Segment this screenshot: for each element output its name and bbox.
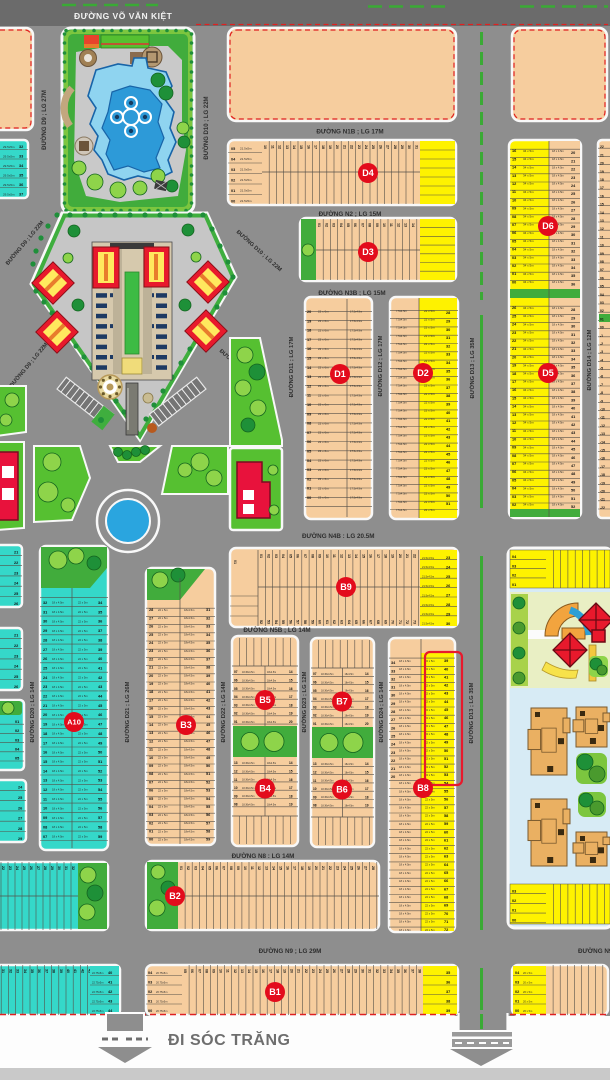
svg-text:17: 17: [293, 866, 297, 870]
svg-text:31: 31: [391, 686, 395, 690]
svg-text:23: 23: [391, 751, 395, 755]
svg-text:20 x 5m: 20 x 5m: [523, 999, 532, 1003]
svg-text:06: 06: [190, 969, 194, 973]
svg-text:18: 18: [43, 732, 47, 736]
svg-text:22 x 5m: 22 x 5m: [78, 732, 88, 736]
svg-text:58: 58: [206, 830, 210, 834]
svg-text:18 x 4.5m: 18 x 4.5m: [552, 413, 565, 417]
svg-text:18 x 4.5m: 18 x 4.5m: [552, 174, 565, 178]
svg-text:29: 29: [50, 866, 54, 870]
svg-text:11: 11: [149, 748, 153, 752]
svg-text:01: 01: [512, 909, 516, 913]
svg-text:22 x 5m: 22 x 5m: [158, 698, 168, 702]
svg-text:19: 19: [283, 969, 287, 973]
svg-text:13: 13: [307, 375, 311, 379]
svg-text:07: 07: [313, 672, 317, 676]
svg-text:48: 48: [206, 748, 210, 752]
svg-text:34 x 5m: 34 x 5m: [523, 182, 534, 186]
svg-text:11: 11: [512, 429, 516, 433]
svg-text:26: 26: [512, 306, 516, 310]
svg-text:05: 05: [313, 689, 317, 693]
svg-text:37: 37: [446, 386, 450, 390]
svg-text:22 x 5m: 22 x 5m: [424, 500, 435, 504]
svg-text:22 x 5m: 22 x 5m: [158, 829, 168, 833]
svg-text:22 x 5m: 22 x 5m: [425, 830, 435, 834]
svg-text:-19: -19: [600, 481, 605, 485]
svg-text:13: 13: [512, 174, 516, 178]
svg-text:21.5x4.5m: 21.5x4.5m: [422, 584, 434, 588]
svg-text:30: 30: [57, 866, 61, 870]
svg-text:35: 35: [206, 641, 210, 645]
svg-text:02: 02: [512, 264, 516, 268]
svg-text:22 x 5m: 22 x 5m: [158, 838, 168, 842]
svg-text:51: 51: [446, 502, 450, 506]
svg-text:22 x 5m: 22 x 5m: [158, 624, 168, 628]
svg-text:ĐƯỜNG D13 ; LG 35M: ĐƯỜNG D13 ; LG 35M: [467, 682, 475, 743]
svg-text:41: 41: [73, 969, 77, 973]
svg-text:18 x 4.5m: 18 x 4.5m: [552, 190, 565, 194]
svg-text:46: 46: [444, 716, 448, 720]
svg-text:21: 21: [342, 145, 346, 149]
svg-text:36: 36: [446, 981, 450, 985]
svg-text:22 x 5m: 22 x 5m: [425, 765, 435, 769]
svg-text:35: 35: [446, 971, 450, 975]
svg-text:29: 29: [571, 225, 575, 229]
svg-text:18x4.5m: 18x4.5m: [184, 682, 195, 686]
svg-text:13: 13: [512, 413, 516, 417]
svg-text:00: 00: [512, 918, 516, 922]
svg-text:15: 15: [600, 203, 604, 207]
svg-text:22 x 5m: 22 x 5m: [424, 400, 435, 404]
svg-text:09: 09: [313, 795, 317, 799]
svg-text:49: 49: [206, 756, 210, 760]
svg-text:56: 56: [98, 807, 102, 811]
svg-text:07: 07: [43, 835, 47, 839]
svg-text:18 x 4.5m: 18 x 4.5m: [399, 732, 412, 736]
svg-text:21: 21: [391, 767, 395, 771]
svg-text:34: 34: [23, 969, 27, 973]
svg-text:53: 53: [267, 620, 271, 624]
svg-text:22 x 6m: 22 x 6m: [318, 421, 329, 425]
svg-text:18.36x4.5m: 18.36x4.5m: [242, 721, 255, 724]
svg-text:07: 07: [303, 554, 307, 558]
svg-text:27: 27: [571, 209, 575, 213]
svg-text:34 x 5m: 34 x 5m: [523, 396, 534, 400]
svg-text:22 x 5m: 22 x 5m: [78, 638, 88, 642]
svg-text:22 x 5m: 22 x 5m: [78, 778, 88, 782]
svg-text:47: 47: [206, 739, 210, 743]
svg-text:-1: -1: [600, 334, 603, 338]
svg-text:73: 73: [413, 620, 417, 624]
svg-text:46: 46: [446, 461, 450, 465]
svg-text:18: 18: [383, 554, 387, 558]
svg-text:22 x 5m: 22 x 5m: [158, 690, 168, 694]
svg-text:07: 07: [512, 462, 516, 466]
svg-text:22: 22: [43, 695, 47, 699]
svg-text:34 x 5m: 34 x 5m: [523, 363, 534, 367]
svg-text:22 x 5m: 22 x 5m: [424, 417, 435, 421]
svg-text:28: 28: [571, 217, 575, 221]
svg-text:18x4.5m: 18x4.5m: [184, 805, 195, 809]
svg-text:20: 20: [391, 775, 395, 779]
svg-text:18 x 4.5m: 18 x 4.5m: [52, 732, 65, 736]
svg-text:09: 09: [212, 969, 216, 973]
svg-text:06: 06: [353, 223, 357, 227]
svg-text:18 x 4.5m: 18 x 4.5m: [52, 806, 65, 810]
svg-text:15: 15: [361, 554, 365, 558]
svg-text:60: 60: [318, 620, 322, 624]
svg-text:ĐƯỜNG N1B ; LG 17M: ĐƯỜNG N1B ; LG 17M: [316, 127, 383, 136]
svg-text:18: 18: [289, 794, 293, 798]
svg-text:63: 63: [444, 855, 448, 859]
svg-text:01: 01: [515, 1000, 519, 1004]
svg-text:12: 12: [149, 739, 153, 743]
svg-text:ĐƯỜNG VÕ VĂN KIỆT: ĐƯỜNG VÕ VĂN KIỆT: [74, 10, 173, 21]
svg-text:58: 58: [444, 814, 448, 818]
svg-text:18 x 4.5m: 18 x 4.5m: [552, 206, 565, 210]
svg-text:7.5x4.5m: 7.5x4.5m: [396, 392, 407, 396]
svg-text:04: 04: [600, 293, 604, 297]
svg-text:22 x 5m: 22 x 5m: [158, 813, 168, 817]
svg-text:18.36x4.5m: 18.36x4.5m: [321, 780, 334, 783]
svg-text:34 x 5m: 34 x 5m: [523, 306, 534, 310]
svg-text:48: 48: [98, 732, 102, 736]
svg-text:21: 21: [14, 634, 18, 638]
svg-text:08: 08: [512, 454, 516, 458]
svg-text:26: 26: [29, 866, 33, 870]
svg-text:29: 29: [43, 629, 47, 633]
svg-text:26: 26: [43, 657, 47, 661]
svg-text:09: 09: [234, 794, 238, 798]
svg-text:22 x 5m: 22 x 5m: [425, 659, 435, 663]
svg-text:18 x 4.5m: 18 x 4.5m: [52, 750, 65, 754]
svg-text:18 x 4.5m: 18 x 4.5m: [552, 322, 565, 326]
svg-text:ĐƯỜNG D10 ; LG 22M: ĐƯỜNG D10 ; LG 22M: [202, 96, 210, 159]
svg-text:20 x 5m: 20 x 5m: [523, 1009, 532, 1013]
svg-text:56: 56: [444, 798, 448, 802]
svg-text:13: 13: [404, 223, 408, 227]
svg-text:16: 16: [307, 347, 311, 351]
svg-text:B5: B5: [259, 695, 271, 705]
svg-text:-3: -3: [600, 350, 603, 354]
svg-text:18 x 4.5m: 18 x 4.5m: [552, 256, 565, 260]
svg-text:18 x 4.5m: 18 x 4.5m: [399, 879, 412, 883]
svg-text:50: 50: [444, 749, 448, 753]
svg-text:22 x 6m: 22 x 6m: [318, 412, 329, 416]
svg-text:18 x 4.5m: 18 x 4.5m: [399, 822, 412, 826]
svg-text:12: 12: [340, 554, 344, 558]
svg-text:18 x 4.5m: 18 x 4.5m: [552, 495, 565, 499]
svg-text:22 x 5m: 22 x 5m: [425, 855, 435, 859]
svg-text:31: 31: [1, 969, 5, 973]
svg-text:22 x 6m: 22 x 6m: [318, 440, 329, 444]
svg-text:28: 28: [446, 603, 450, 607]
svg-text:22 x 5m: 22 x 5m: [424, 392, 435, 396]
svg-text:7.5x4.5m: 7.5x4.5m: [396, 508, 407, 512]
svg-text:43: 43: [446, 436, 450, 440]
svg-text:57: 57: [206, 821, 210, 825]
svg-text:01: 01: [233, 560, 237, 564]
svg-text:34 x 5m: 34 x 5m: [523, 206, 534, 210]
svg-text:22 x 5m: 22 x 5m: [425, 740, 435, 744]
svg-text:31: 31: [206, 608, 210, 612]
svg-text:05: 05: [288, 554, 292, 558]
svg-text:11: 11: [226, 969, 230, 973]
svg-text:18x4.5m: 18x4.5m: [267, 770, 276, 773]
svg-text:50: 50: [206, 764, 210, 768]
svg-text:01: 01: [600, 317, 604, 321]
svg-text:18x4.5m: 18x4.5m: [184, 772, 195, 776]
svg-text:12: 12: [43, 788, 47, 792]
svg-text:17: 17: [314, 145, 318, 149]
svg-text:22 x 5m: 22 x 5m: [424, 458, 435, 462]
svg-text:18 x 4.5m: 18 x 4.5m: [399, 863, 412, 867]
svg-text:18x4.5m: 18x4.5m: [267, 688, 276, 691]
svg-text:22 x 5m: 22 x 5m: [78, 694, 88, 698]
svg-text:16: 16: [365, 689, 369, 693]
svg-text:22 x 6m: 22 x 6m: [318, 319, 329, 323]
svg-text:22 x 6m: 22 x 6m: [318, 347, 329, 351]
svg-text:38: 38: [206, 666, 210, 670]
svg-text:43: 43: [108, 1000, 112, 1004]
svg-text:12: 12: [313, 771, 317, 775]
svg-text:20 x 5m: 20 x 5m: [523, 971, 532, 975]
svg-text:15: 15: [149, 715, 153, 719]
svg-text:16: 16: [149, 707, 153, 711]
svg-text:05: 05: [512, 478, 516, 482]
svg-text:18x4.5m: 18x4.5m: [345, 715, 354, 718]
svg-text:06: 06: [512, 231, 516, 235]
svg-text:16: 16: [261, 969, 265, 973]
svg-text:31: 31: [64, 866, 68, 870]
svg-text:17: 17: [376, 554, 380, 558]
svg-text:23: 23: [149, 649, 153, 653]
svg-text:12: 12: [512, 421, 516, 425]
svg-text:22 x 5m: 22 x 5m: [158, 797, 168, 801]
svg-text:03: 03: [234, 703, 238, 707]
svg-text:19: 19: [289, 803, 293, 807]
svg-text:55: 55: [206, 805, 210, 809]
svg-text:22 x 5m: 22 x 5m: [425, 903, 435, 907]
svg-text:20: 20: [149, 674, 153, 678]
svg-text:29.5x5m: 29.5x5m: [3, 192, 15, 196]
svg-text:D5: D5: [542, 368, 554, 378]
svg-text:ĐƯỜNG D9 ; LG 27M: ĐƯỜNG D9 ; LG 27M: [40, 90, 48, 150]
svg-text:38: 38: [52, 969, 56, 973]
svg-text:22 x 5m: 22 x 5m: [78, 806, 88, 810]
svg-text:28: 28: [18, 827, 22, 831]
svg-text:18 x 4.5m: 18 x 4.5m: [399, 838, 412, 842]
svg-text:33: 33: [571, 349, 575, 353]
svg-text:40: 40: [571, 407, 575, 411]
svg-text:21: 21: [571, 159, 575, 163]
svg-text:24: 24: [318, 969, 322, 973]
svg-text:22 x 5m: 22 x 5m: [425, 700, 435, 704]
svg-text:20.75x5m: 20.75x5m: [156, 990, 167, 994]
svg-text:-14: -14: [600, 440, 605, 444]
svg-text:22 x 5m: 22 x 5m: [425, 797, 435, 801]
svg-text:31: 31: [446, 336, 450, 340]
svg-text:69: 69: [444, 904, 448, 908]
svg-text:18 x 4.5m: 18 x 4.5m: [552, 454, 565, 458]
svg-text:05: 05: [149, 797, 153, 801]
svg-text:ĐƯỜNG D21 ; LG 26M: ĐƯỜNG D21 ; LG 26M: [123, 681, 131, 742]
svg-text:34 x 5m: 34 x 5m: [523, 231, 534, 235]
svg-text:21.5x4.5m: 21.5x4.5m: [422, 603, 434, 607]
svg-text:17.5x4.9m: 17.5x4.9m: [350, 431, 362, 435]
svg-text:18.36x4.5m: 18.36x4.5m: [242, 787, 255, 790]
svg-text:24: 24: [342, 866, 346, 870]
svg-text:07: 07: [307, 431, 311, 435]
svg-text:20.75x5m: 20.75x5m: [156, 1009, 167, 1013]
svg-text:09: 09: [375, 223, 379, 227]
svg-text:04: 04: [281, 554, 285, 558]
svg-text:18 x 4.5m: 18 x 4.5m: [52, 685, 65, 689]
svg-text:33: 33: [206, 625, 210, 629]
svg-text:7.5x4.5m: 7.5x4.5m: [396, 400, 407, 404]
svg-text:18 x 4.5m: 18 x 4.5m: [399, 757, 412, 761]
svg-text:38: 38: [446, 394, 450, 398]
svg-text:32: 32: [375, 969, 379, 973]
svg-text:10: 10: [307, 403, 311, 407]
svg-text:22 x 6m: 22 x 6m: [318, 459, 329, 463]
svg-text:-11: -11: [600, 416, 605, 420]
svg-text:03: 03: [313, 705, 317, 709]
svg-text:17.5x4.9m: 17.5x4.9m: [350, 486, 362, 490]
svg-text:35: 35: [571, 366, 575, 370]
svg-text:11: 11: [234, 778, 238, 782]
svg-text:03: 03: [512, 889, 516, 893]
svg-text:ĐƯỜNG N8 : LG 14M: ĐƯỜNG N8 : LG 14M: [232, 851, 295, 860]
svg-text:22 x 5m: 22 x 5m: [425, 667, 435, 671]
svg-text:18 x 4.5m: 18 x 4.5m: [399, 667, 412, 671]
svg-text:04: 04: [313, 697, 317, 701]
svg-text:34 x 5m: 34 x 5m: [523, 413, 534, 417]
svg-text:42: 42: [206, 698, 210, 702]
svg-text:64: 64: [347, 620, 351, 624]
svg-text:18x4.5m: 18x4.5m: [184, 608, 195, 612]
svg-text:15: 15: [307, 357, 311, 361]
svg-text:34 x 5m: 34 x 5m: [523, 247, 534, 251]
svg-text:34 x 5m: 34 x 5m: [523, 149, 534, 153]
svg-text:40: 40: [98, 657, 102, 661]
svg-text:22: 22: [14, 561, 18, 565]
svg-text:18x4.5m: 18x4.5m: [184, 633, 195, 637]
svg-text:22 x 5m: 22 x 5m: [425, 887, 435, 891]
svg-text:7.5x4.5m: 7.5x4.5m: [396, 309, 407, 313]
svg-text:51: 51: [444, 757, 448, 761]
svg-text:22 x 5m: 22 x 5m: [424, 351, 435, 355]
svg-text:18x4.5m: 18x4.5m: [184, 821, 195, 825]
svg-text:18: 18: [512, 372, 516, 376]
svg-text:22 x 5m: 22 x 5m: [78, 825, 88, 829]
svg-text:22 x 5m: 22 x 5m: [78, 666, 88, 670]
svg-text:22 x 5m: 22 x 5m: [158, 780, 168, 784]
svg-text:18.36x4.5m: 18.36x4.5m: [321, 771, 334, 774]
svg-text:15: 15: [254, 969, 258, 973]
svg-text:01: 01: [317, 223, 321, 227]
svg-text:18.36x4.5m: 18.36x4.5m: [321, 706, 334, 709]
svg-text:B1: B1: [269, 987, 281, 997]
svg-text:22 x 5m: 22 x 5m: [424, 342, 435, 346]
svg-text:7.5x4.5m: 7.5x4.5m: [396, 467, 407, 471]
svg-text:ĐƯỜNG D20 ; LG 14M: ĐƯỜNG D20 ; LG 14M: [28, 681, 36, 742]
svg-text:16: 16: [306, 145, 310, 149]
svg-text:34 x 5m: 34 x 5m: [523, 495, 534, 499]
svg-text:00: 00: [512, 280, 516, 284]
svg-text:18 x 4.5m: 18 x 4.5m: [552, 339, 565, 343]
svg-text:18 x 4.5m: 18 x 4.5m: [52, 648, 65, 652]
svg-text:07: 07: [197, 969, 201, 973]
svg-text:18 x 4.5m: 18 x 4.5m: [552, 462, 565, 466]
svg-text:22 x 5m: 22 x 5m: [78, 704, 88, 708]
svg-text:20: 20: [314, 866, 318, 870]
svg-text:ĐƯỜNG D13 ; LG 35M: ĐƯỜNG D13 ; LG 35M: [468, 337, 476, 398]
svg-text:05: 05: [234, 687, 238, 691]
svg-text:18 x 4.5m: 18 x 4.5m: [52, 638, 65, 642]
svg-text:22 x 6m: 22 x 6m: [318, 393, 329, 397]
svg-text:18x4.5m: 18x4.5m: [267, 713, 276, 716]
svg-text:11: 11: [43, 797, 47, 801]
svg-text:26: 26: [357, 866, 361, 870]
svg-text:18 x 4.5m: 18 x 4.5m: [552, 478, 565, 482]
svg-text:22: 22: [350, 145, 354, 149]
svg-text:18: 18: [300, 866, 304, 870]
svg-text:59: 59: [98, 835, 102, 839]
svg-text:18 x 4.5m: 18 x 4.5m: [552, 486, 565, 490]
svg-text:22 x 5m: 22 x 5m: [424, 450, 435, 454]
svg-text:29: 29: [391, 702, 395, 706]
svg-text:22 x 5m: 22 x 5m: [78, 741, 88, 745]
svg-text:03: 03: [512, 256, 516, 260]
svg-text:15: 15: [279, 866, 283, 870]
svg-text:18: 18: [307, 329, 311, 333]
svg-text:13: 13: [264, 866, 268, 870]
svg-text:-5: -5: [600, 367, 603, 371]
svg-text:30: 30: [446, 622, 450, 626]
svg-text:29.5x5m: 29.5x5m: [3, 173, 15, 177]
svg-text:36: 36: [446, 378, 450, 382]
svg-text:18 x 4.5m: 18 x 4.5m: [552, 470, 565, 474]
svg-text:18x4.5m: 18x4.5m: [184, 813, 195, 817]
svg-text:ĐƯỜNG D23 ; LG 12M: ĐƯỜNG D23 ; LG 12M: [300, 671, 308, 732]
svg-text:13: 13: [240, 969, 244, 973]
svg-text:18 x 4.5m: 18 x 4.5m: [52, 835, 65, 839]
svg-text:11: 11: [313, 779, 317, 783]
svg-text:34 x 5m: 34 x 5m: [523, 157, 534, 161]
svg-text:06: 06: [149, 789, 153, 793]
svg-text:18 x 4.5m: 18 x 4.5m: [399, 683, 412, 687]
svg-text:18: 18: [321, 145, 325, 149]
svg-text:18x4.5m: 18x4.5m: [345, 763, 354, 766]
svg-text:09: 09: [600, 252, 604, 256]
svg-text:39: 39: [206, 674, 210, 678]
svg-text:19: 19: [391, 554, 395, 558]
svg-text:26: 26: [14, 685, 18, 689]
svg-text:56: 56: [288, 620, 292, 624]
svg-text:18x4.5m: 18x4.5m: [184, 788, 195, 792]
svg-text:35: 35: [571, 274, 575, 278]
svg-text:-9: -9: [600, 399, 603, 403]
svg-text:34 x 5m: 34 x 5m: [523, 429, 534, 433]
svg-text:50: 50: [98, 751, 102, 755]
svg-text:14: 14: [365, 672, 369, 676]
svg-text:22 x 5m: 22 x 5m: [78, 619, 88, 623]
svg-text:18x4.5m: 18x4.5m: [184, 764, 195, 768]
svg-text:17.5x4.9m: 17.5x4.9m: [350, 421, 362, 425]
svg-text:18 x 4.5m: 18 x 4.5m: [52, 741, 65, 745]
svg-text:08: 08: [204, 969, 208, 973]
